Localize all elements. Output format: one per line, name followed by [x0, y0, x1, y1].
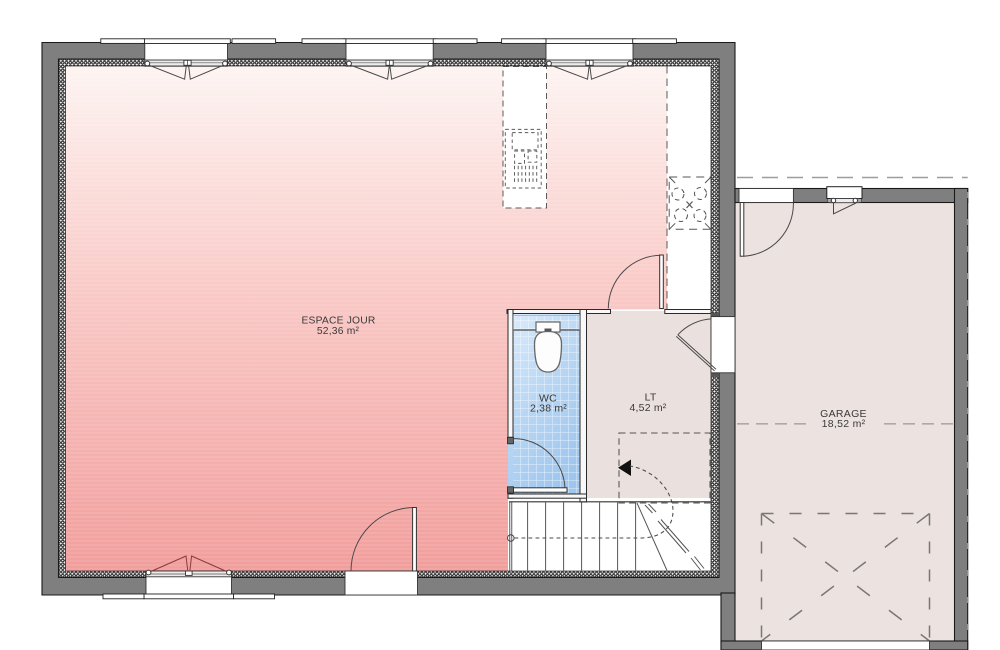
svg-text:52,36 m²: 52,36 m² — [317, 326, 360, 337]
svg-text:2,38 m²: 2,38 m² — [530, 403, 567, 415]
svg-text:ESPACE JOUR: ESPACE JOUR — [301, 316, 375, 327]
svg-text:18,52 m²: 18,52 m² — [822, 418, 866, 430]
svg-text:4,52 m²: 4,52 m² — [630, 402, 667, 414]
